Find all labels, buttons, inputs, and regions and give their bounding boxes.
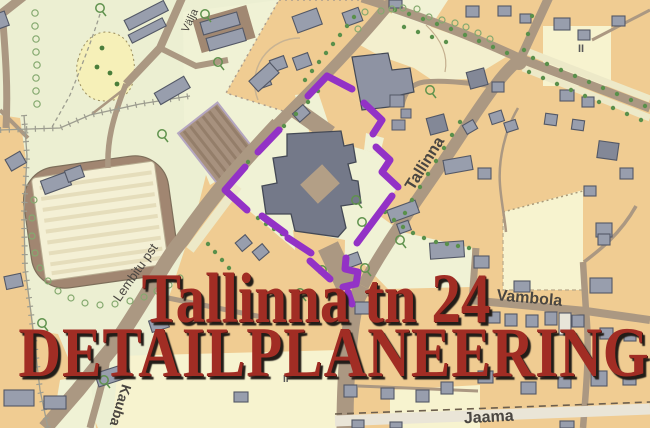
svg-text:II: II bbox=[578, 43, 584, 55]
svg-text:Jaama: Jaama bbox=[463, 408, 514, 428]
